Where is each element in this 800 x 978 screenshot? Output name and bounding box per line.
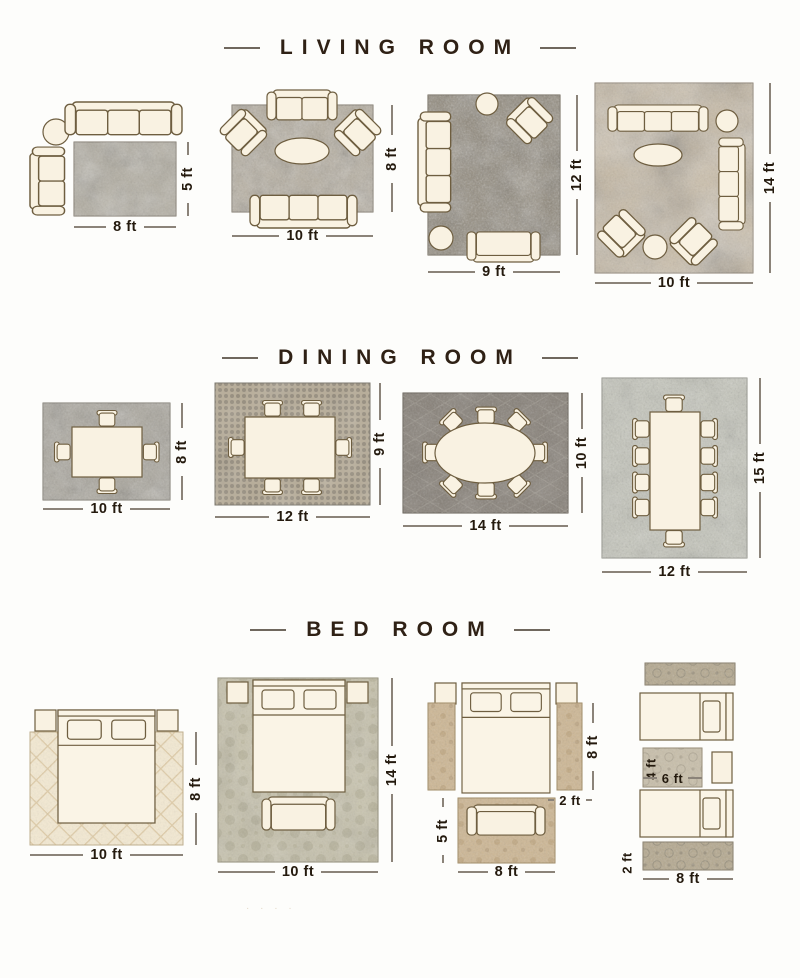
dimension-line (643, 878, 669, 880)
rug-height-dimension: 12 ft (569, 95, 585, 255)
dining-chair (55, 442, 71, 462)
dimension-line (592, 771, 594, 791)
dimension-line (688, 777, 702, 779)
rug-width-dimension: 10 ft (30, 847, 183, 863)
dining-chair (476, 407, 497, 423)
dimension-line (130, 854, 183, 856)
dining-chair (664, 531, 685, 547)
living-layout-10x8-illustration (213, 83, 403, 248)
dimension-line (30, 854, 83, 856)
dimension-line (316, 516, 370, 518)
dimension-line (181, 403, 183, 428)
runner-rug (645, 663, 735, 685)
dimension-label: 2 ft (620, 852, 635, 874)
dimension-label: 10 ft (282, 864, 314, 880)
dimension-label: 5 ft (180, 167, 196, 191)
dimension-line (759, 492, 761, 558)
dimension-label: 10 ft (90, 847, 122, 863)
dimension-line (403, 525, 462, 527)
ottoman (429, 226, 453, 250)
bed-room-title: BED ROOM (0, 618, 800, 642)
dimension-line (595, 282, 651, 284)
nightstand (435, 683, 456, 704)
dimension-line (548, 799, 554, 801)
sofa (418, 112, 451, 212)
runner-rug (428, 703, 455, 790)
dimension-label: 8 ft (676, 871, 700, 887)
dining-chair (263, 401, 283, 417)
dimension-label: 8 ft (174, 440, 190, 464)
dimension-line (144, 226, 176, 228)
dimension-label: 14 ft (469, 518, 501, 534)
dimension-label: 14 ft (384, 754, 400, 786)
dimension-line (525, 871, 555, 873)
dimension-line (576, 95, 578, 151)
dining-layout-14x10-illustration (400, 385, 592, 533)
rug-width-dimension: 10 ft (218, 864, 378, 880)
dining-chair (633, 419, 649, 440)
dimension-line (130, 508, 170, 510)
rug-width-dimension: 12 ft (602, 564, 747, 580)
living-layout-9x12-illustration (410, 85, 592, 285)
twin-bed (640, 693, 733, 740)
dimension-line (74, 226, 106, 228)
rug-height-dimension: 10 ft (574, 393, 590, 513)
dining-layout-12x9-illustration (205, 375, 393, 527)
rug-width-dimension: 10 ft (595, 275, 753, 291)
dining-chair (263, 479, 283, 495)
dimension-line (769, 83, 771, 154)
rug-height-dimension: 8 ft (174, 403, 190, 500)
dining-chair (302, 401, 322, 417)
loveseat (467, 232, 540, 262)
dimension-line (379, 383, 381, 420)
side-table (716, 110, 738, 132)
title-dash-right (542, 357, 578, 359)
rug-size-guide: LIVING ROOM 8 ft 5 ft (0, 0, 800, 978)
rug-height-dimension: 9 ft (372, 383, 388, 505)
dimension-line (697, 282, 753, 284)
dimension-label: 10 ft (90, 501, 122, 517)
living-layout-9x12: 9 ft 12 ft (410, 85, 592, 285)
dimension-line (576, 199, 578, 255)
dining-chair (701, 472, 717, 493)
dining-chair (664, 395, 685, 411)
runner-height-dimension: 2 ft (619, 842, 635, 870)
dimension-label: 8 ft (188, 777, 204, 801)
rug-height-dimension: 8 ft (384, 105, 400, 212)
bed-layout-10x8: 10 ft 8 ft (25, 700, 205, 868)
dimension-line (391, 183, 393, 213)
runner-height-dimension: 8 ft (585, 703, 601, 790)
dining-chair (229, 438, 245, 458)
rug-width-dimension: 12 ft (215, 509, 370, 525)
foot-rug-width-dimension: 8 ft (458, 864, 555, 880)
dimension-line (458, 871, 488, 873)
living-room-title: LIVING ROOM (0, 36, 800, 60)
title-dash-left (250, 629, 286, 631)
runner-rug (557, 703, 582, 790)
bench (467, 805, 545, 835)
dimension-label: 10 ft (286, 228, 318, 244)
dining-layout-12x9: 12 ft 9 ft (205, 375, 393, 527)
dimension-line (187, 142, 189, 155)
rug-width-dimension: 10 ft (232, 228, 373, 244)
rug-width-dimension: 10 ft (43, 501, 170, 517)
living-layout-10x14: 10 ft 14 ft (588, 70, 793, 298)
dimension-line (643, 777, 657, 779)
nightstand (227, 682, 248, 703)
dimension-label: 14 ft (762, 162, 778, 194)
dimension-line (187, 203, 189, 216)
runner-rug (643, 842, 733, 870)
dimension-line (759, 378, 761, 444)
dimension-line (391, 678, 393, 746)
bed (253, 680, 345, 792)
dimension-line (698, 571, 747, 573)
dimension-line (707, 878, 733, 880)
title-dash-right (514, 629, 550, 631)
dimension-label: 9 ft (372, 432, 388, 456)
dimension-label: 12 ft (569, 159, 585, 191)
dining-table (650, 412, 700, 530)
dining-table (435, 423, 535, 483)
dimension-label: 10 ft (658, 275, 690, 291)
dimension-line (181, 476, 183, 501)
bed (58, 710, 155, 823)
dimension-label: 2 ft (559, 793, 581, 808)
title-dash-left (224, 47, 260, 49)
dimension-line (326, 235, 373, 237)
dimension-label: 5 ft (435, 819, 451, 843)
dining-chair (701, 497, 717, 518)
nightstand (35, 710, 56, 731)
bed-layout-10x8-illustration (25, 700, 205, 868)
living-layout-8x5: 8 ft 5 ft (25, 95, 200, 245)
foot-rug-height-dimension: 5 ft (435, 798, 451, 863)
dimension-line (232, 235, 279, 237)
side-table (476, 93, 498, 115)
twin-bed (640, 790, 733, 837)
bed-layout-10x14-illustration (210, 670, 402, 882)
dimension-line (581, 477, 583, 513)
dimension-line (592, 703, 594, 723)
dining-room-title: DINING ROOM (0, 346, 800, 370)
bed-layout-twin-beds: 4 ft 6 ft 2 ft 8 ft (615, 655, 800, 893)
dimension-line (43, 508, 83, 510)
dining-layout-14x10: 14 ft 10 ft (400, 385, 592, 533)
dimension-line (379, 468, 381, 505)
nightstand (712, 752, 732, 783)
dining-room-title-text: DINING ROOM (278, 346, 522, 370)
sofa (719, 138, 745, 230)
dining-chair (701, 446, 717, 467)
dimension-label: 12 ft (276, 509, 308, 525)
title-dash-left (222, 357, 258, 359)
dimension-line (218, 871, 275, 873)
watermark: · · · · (246, 903, 296, 914)
dining-chair (633, 472, 649, 493)
bed-room-title-text: BED ROOM (306, 618, 494, 642)
dimension-line (602, 571, 651, 573)
rug (74, 142, 176, 216)
sofa (250, 195, 357, 228)
rug-height-dimension: 5 ft (180, 142, 196, 216)
dining-table (245, 417, 335, 478)
dimension-label: 12 ft (658, 564, 690, 580)
dimension-line (442, 855, 444, 864)
rug-height-dimension: 15 ft (752, 378, 768, 558)
rug-height-dimension: 14 ft (762, 83, 778, 273)
bench (262, 797, 335, 830)
ottoman (643, 235, 667, 259)
coffee-table (634, 144, 682, 166)
dimension-line (442, 798, 444, 807)
nightstand (556, 683, 577, 704)
dimension-label: 6 ft (662, 771, 684, 786)
dimension-line (769, 202, 771, 273)
dining-chair (336, 438, 352, 458)
dimension-line (195, 732, 197, 765)
sofa (608, 105, 708, 131)
dimension-line (509, 525, 568, 527)
dimension-line (321, 871, 378, 873)
dimension-line (391, 794, 393, 862)
sofa (267, 90, 337, 120)
dining-layout-12x15: 12 ft 15 ft (595, 370, 780, 582)
dimension-label: 8 ft (495, 864, 519, 880)
dining-chair (97, 478, 117, 494)
dining-chair (633, 446, 649, 467)
loveseat (30, 147, 65, 215)
rug-width-dimension: 9 ft (428, 264, 560, 280)
living-layout-10x8: 10 ft 8 ft (213, 83, 403, 248)
dimension-line (391, 105, 393, 135)
dimension-line (513, 271, 560, 273)
dimension-label: 15 ft (752, 452, 768, 484)
dining-chair (633, 497, 649, 518)
runner-width-dimension: 2 ft (548, 793, 592, 807)
bed-layout-10x14: 10 ft 14 ft (210, 670, 402, 882)
rug-height-dimension: 8 ft (188, 732, 204, 845)
rug-width-dimension: 8 ft (74, 219, 176, 235)
dimension-label: 8 ft (113, 219, 137, 235)
runner-width-dimension: 8 ft (643, 871, 733, 887)
bed-layout-runners: 8 ft 2 ft 5 ft 8 ft (420, 675, 608, 883)
dimension-label: 9 ft (482, 264, 506, 280)
dimension-label: 8 ft (585, 735, 601, 759)
dining-table (72, 427, 142, 477)
dimension-line (195, 813, 197, 846)
dimension-label: 8 ft (384, 147, 400, 171)
dining-chair (143, 442, 159, 462)
dining-chair (302, 479, 322, 495)
dimension-line (586, 799, 592, 801)
dining-layout-10x8: 10 ft 8 ft (25, 390, 197, 522)
dimension-line (428, 271, 475, 273)
living-room-title-text: LIVING ROOM (280, 36, 520, 60)
rug-height-dimension: 14 ft (384, 678, 400, 862)
dining-chair (701, 419, 717, 440)
title-dash-right (540, 47, 576, 49)
sofa (65, 102, 182, 135)
dimension-line (215, 516, 269, 518)
dining-chair (476, 483, 497, 499)
nightstand (347, 682, 368, 703)
middle-rug-width-dimension: 6 ft (643, 771, 702, 785)
coffee-table (275, 138, 329, 164)
dimension-line (581, 393, 583, 429)
dimension-label: 10 ft (574, 437, 590, 469)
dining-chair (97, 411, 117, 427)
bed (462, 683, 550, 793)
rug-width-dimension: 14 ft (403, 518, 568, 534)
nightstand (157, 710, 178, 731)
